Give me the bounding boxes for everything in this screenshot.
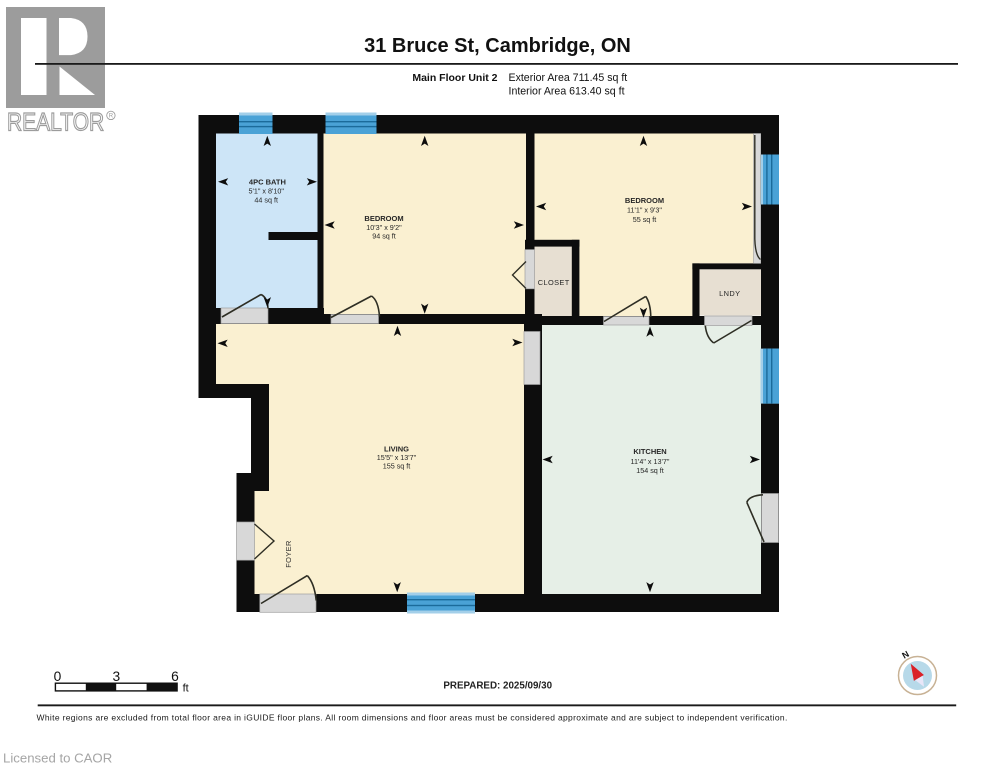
svg-text:11'4" x 13'7": 11'4" x 13'7" [631, 457, 670, 466]
svg-text:Main Floor Unit 2: Main Floor Unit 2 [412, 72, 497, 84]
svg-text:Licensed to CAOR: Licensed to CAOR [3, 751, 112, 766]
svg-text:BEDROOM: BEDROOM [625, 196, 664, 205]
svg-text:FOYER: FOYER [284, 540, 293, 567]
svg-text:BEDROOM: BEDROOM [364, 214, 403, 223]
svg-text:11'1" x 9'3": 11'1" x 9'3" [627, 206, 662, 215]
svg-text:5'1" x 8'10": 5'1" x 8'10" [248, 186, 284, 195]
svg-text:94 sq ft: 94 sq ft [372, 232, 396, 241]
svg-text:R: R [109, 114, 114, 120]
svg-text:REALTOR: REALTOR [7, 108, 104, 136]
svg-text:155 sq ft: 155 sq ft [383, 461, 411, 470]
svg-text:KITCHEN: KITCHEN [633, 447, 666, 456]
svg-text:55 sq ft: 55 sq ft [633, 215, 657, 224]
svg-text:44 sq ft: 44 sq ft [254, 195, 278, 204]
svg-text:LNDY: LNDY [719, 289, 740, 298]
svg-text:3: 3 [112, 669, 120, 684]
svg-text:ft: ft [183, 683, 189, 695]
svg-text:Interior Area 613.40 sq ft: Interior Area 613.40 sq ft [509, 85, 625, 97]
svg-text:6: 6 [171, 669, 179, 684]
svg-text:10'3" x 9'2": 10'3" x 9'2" [366, 223, 402, 232]
svg-text:PREPARED: 2025/09/30: PREPARED: 2025/09/30 [443, 681, 552, 692]
svg-text:0: 0 [54, 669, 62, 684]
svg-text:CLOSET: CLOSET [538, 278, 570, 287]
svg-text:Exterior Area 711.45 sq ft: Exterior Area 711.45 sq ft [509, 72, 628, 84]
svg-text:White regions are excluded fro: White regions are excluded from total fl… [37, 713, 788, 723]
svg-text:31 Bruce St, Cambridge, ON: 31 Bruce St, Cambridge, ON [364, 35, 631, 57]
svg-text:154 sq ft: 154 sq ft [636, 466, 664, 475]
svg-text:4PC BATH: 4PC BATH [249, 177, 286, 186]
